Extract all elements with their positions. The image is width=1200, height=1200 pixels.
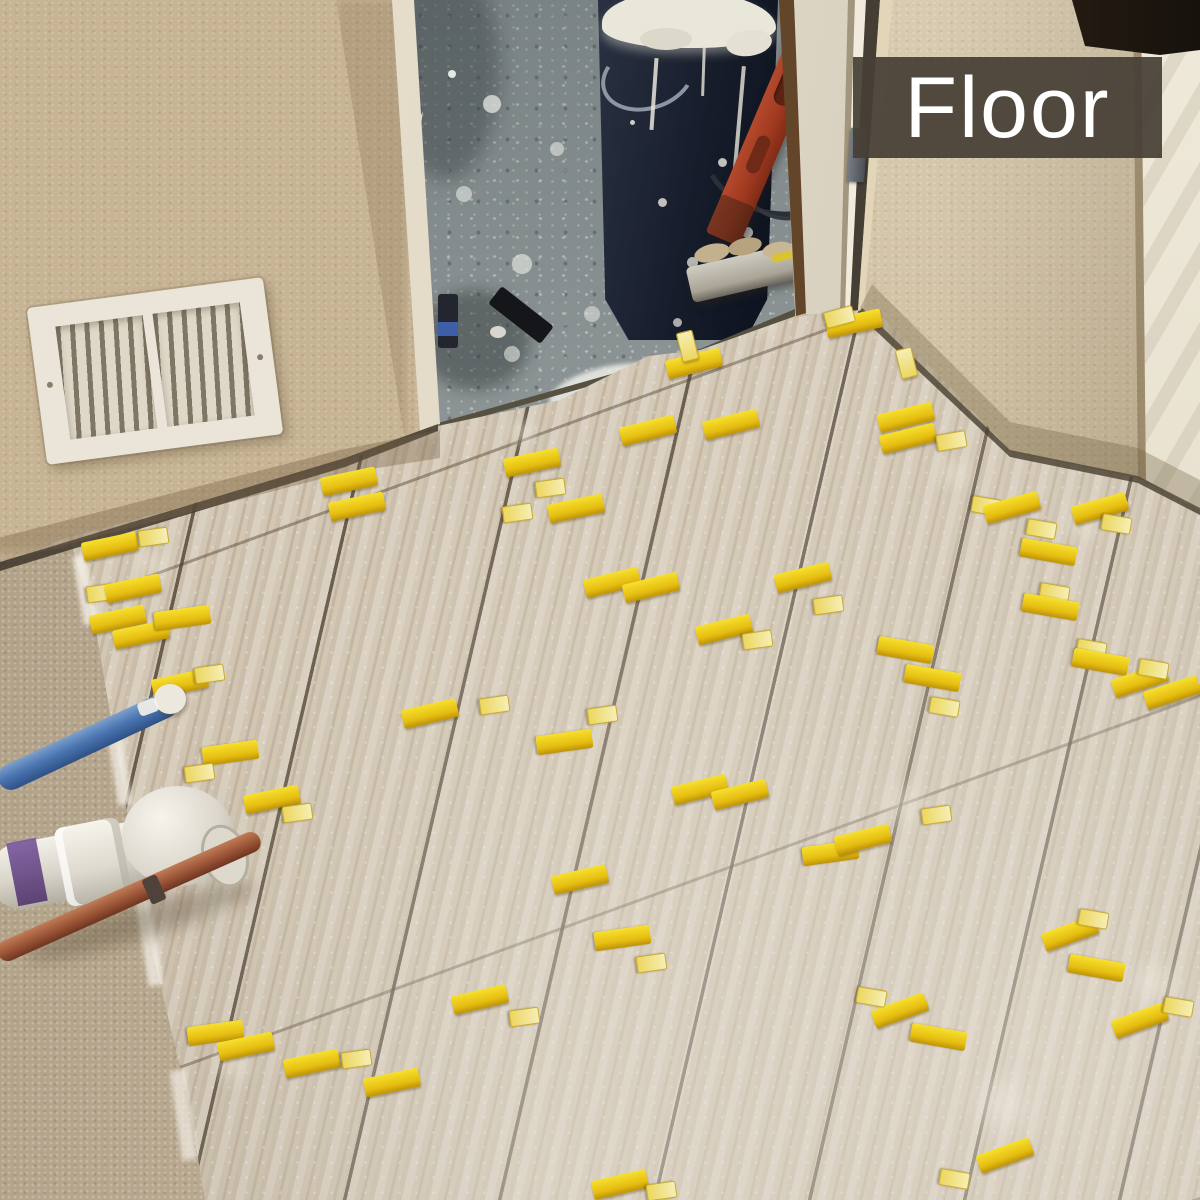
tile-leveling-clip (81, 531, 140, 561)
floor-label-text: Floor (905, 65, 1111, 151)
tile-leveling-clip (591, 1168, 650, 1199)
tile-leveling-clip (635, 952, 667, 973)
tile-leveling-clip (547, 493, 606, 523)
tile-leveling-clip (774, 561, 833, 593)
tile-leveling-clip (876, 636, 934, 664)
tile-leveling-clip (451, 983, 510, 1014)
tile-leveling-clip (363, 1067, 422, 1097)
tile-leveling-clip (104, 573, 163, 603)
tile-leveling-clip (741, 629, 773, 650)
tile-leveling-clip (702, 408, 761, 440)
tile-leveling-clip (909, 1023, 967, 1051)
tile-leveling-clip (401, 697, 460, 728)
tile-leveling-clip (1025, 518, 1057, 540)
tile-leveling-clip (928, 696, 960, 718)
tile-leveling-clip (501, 502, 533, 523)
tile-leveling-clip (183, 762, 215, 783)
tile-leveling-clip (1110, 1001, 1169, 1038)
tile-leveling-clip (281, 802, 313, 823)
tile-leveling-clip (551, 863, 610, 894)
tile-leveling-clip (1019, 538, 1077, 566)
tile-leveling-clip (812, 594, 844, 615)
tile-leveling-clip (834, 823, 893, 855)
room-photo: Floor (0, 0, 1200, 1200)
tile-leveling-clip (920, 804, 952, 825)
tile-leveling-clip (137, 526, 169, 547)
tile-leveling-clip (534, 477, 566, 498)
tile-leveling-clip (619, 414, 678, 446)
floor-label: Floor (853, 57, 1162, 158)
tile-leveling-clip (535, 729, 593, 756)
tile-leveling-clip (593, 925, 651, 952)
tile-leveling-clip (283, 1048, 342, 1078)
tile-leveling-clip (586, 704, 618, 725)
tile-leveling-clip (1021, 593, 1079, 621)
tile-leveling-clip (328, 491, 387, 521)
tile-leveling-clip (935, 430, 967, 452)
tile-leveling-clip (193, 663, 225, 684)
tile-leveling-clip (153, 605, 211, 632)
tile-leveling-clip (503, 447, 562, 477)
tile-leveling-clip (340, 1048, 372, 1069)
tile-leveling-clip (645, 1180, 677, 1200)
tile-leveling-clip (975, 1136, 1034, 1173)
tile-leveling-clip (1067, 954, 1125, 982)
tile-leveling-clip (855, 986, 887, 1008)
tile-leveling-clip (320, 466, 379, 496)
tile-leveling-clip (1100, 513, 1132, 535)
tile-leveling-clip (938, 1168, 970, 1190)
tile-leveling-clip (894, 346, 918, 379)
clip-layer (0, 0, 1200, 1200)
tile-leveling-clip (1071, 648, 1129, 676)
pex-pipe-cap (154, 684, 186, 714)
tile-leveling-clip (508, 1006, 540, 1027)
tile-leveling-clip (478, 694, 510, 715)
tile-leveling-clip (903, 664, 961, 692)
